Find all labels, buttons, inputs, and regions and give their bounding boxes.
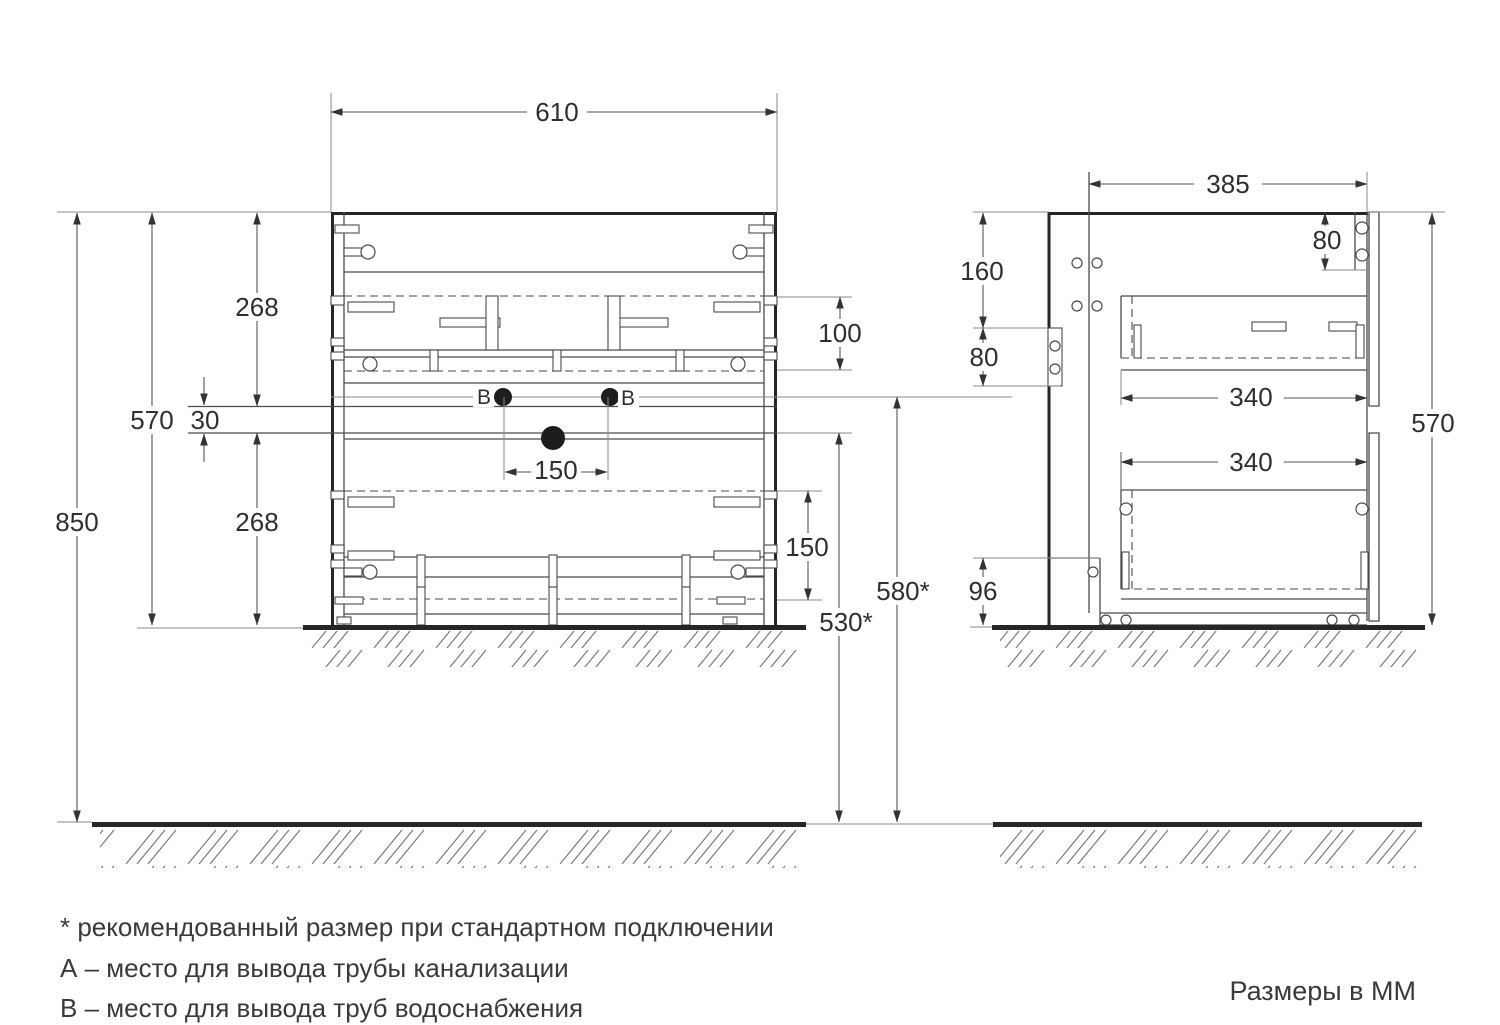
front-floor-line [92,822,806,827]
dim-overall-height: 850 [55,507,98,537]
side-upper-hatching [1000,631,1420,667]
footnote-drain-location: А – место для вывода трубы канализации [60,953,569,983]
notes: * рекомендованный размер при стандартном… [60,912,1416,1023]
dim-upper-mech-height: 100 [818,318,861,348]
footnote-supply-location: В – место для вывода труб водоснабжения [60,993,583,1023]
dim-supply-outlet-height: 580* [876,576,930,606]
side-view: 385 160 80 80 340 340 570 96 [948,169,1468,627]
front-upper-hatching [310,631,798,667]
front-lower-hatching [100,828,800,868]
front-connection-holes: В В [473,386,639,450]
side-drawer-dashed-lines [1121,296,1367,589]
drain-hole [541,426,565,450]
front-cabinet-structure [188,212,1012,626]
front-screw-low-left [363,565,377,579]
dim-upper-drawer-front: 268 [235,292,278,322]
dim-lower-mech-height: 150 [785,532,828,562]
dim-holes-spacing: 150 [534,455,577,485]
hole-label-right: В [621,387,635,410]
side-dimensions: 385 160 80 80 340 340 570 96 [948,169,1468,627]
floor-lines [92,625,1425,868]
side-floor-line [993,822,1422,827]
dim-cabinet-height: 570 [130,405,173,435]
dim-front-top-offset: 80 [1313,225,1342,255]
front-drawer-gap-lines [188,407,777,434]
dim-hanger-bracket-height: 80 [970,342,999,372]
front-screw-top-right [733,245,747,259]
vanity-dimension-drawing: В В [0,0,1500,1025]
dim-upper-drawer-depth: 340 [1229,382,1272,412]
hole-label-left: В [477,386,491,409]
wall-hanger-bracket [1048,328,1062,386]
side-cabinet-outline [1049,212,1368,626]
footnote-recommended-size: * рекомендованный размер при стандартном… [60,912,774,942]
side-lower-hatching [1000,828,1418,868]
technical-drawing-page: В В [0,0,1500,1025]
dim-back-top-offset: 160 [960,256,1003,286]
dim-bottom-clearance: 96 [969,576,998,606]
front-dimensions: 610 850 570 268 30 268 100 150 150 530* … [49,93,993,824]
dim-width: 610 [535,97,578,127]
front-screw-low-right [731,565,745,579]
dim-side-height: 570 [1411,408,1454,438]
units-note: Размеры в ММ [1229,976,1416,1006]
front-screw-mid-left [363,357,377,371]
dim-depth: 385 [1206,169,1249,199]
front-view: В В [49,93,1012,824]
dim-drawer-gap: 30 [191,405,220,435]
front-screw-top-left [361,245,375,259]
side-mounting-floor-line [992,625,1425,630]
dim-drain-outlet-height: 530* [819,607,873,637]
water-supply-hole-right [601,388,619,406]
dim-lower-drawer-front: 268 [235,507,278,537]
front-screw-mid-right [731,357,745,371]
front-upper-drawer-mech [331,225,777,371]
dim-lower-drawer-depth: 340 [1229,447,1272,477]
water-supply-hole-left [494,388,512,406]
front-lower-drawer-mech [331,491,777,625]
front-mounting-floor-line [303,625,806,630]
